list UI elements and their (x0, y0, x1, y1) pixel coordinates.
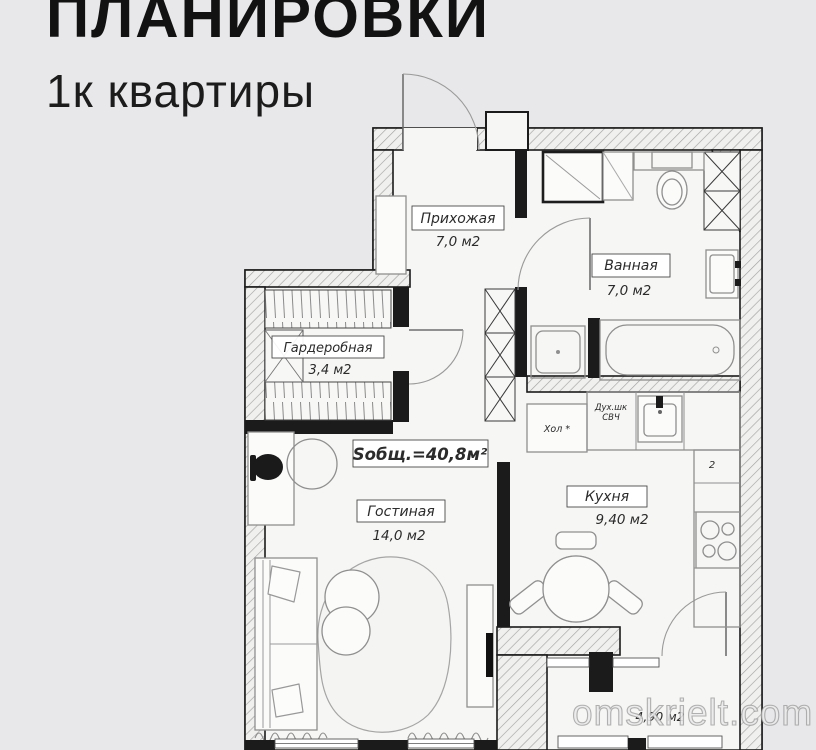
living-name: Гостиная (367, 504, 434, 520)
wardrobe-name: Гардеробная (284, 341, 373, 356)
desk (248, 432, 294, 525)
entry-column (486, 112, 528, 150)
vent-shaft-hall (485, 289, 515, 421)
tv-console (467, 585, 493, 707)
windows-bottom (245, 739, 497, 750)
cabinet-number: 2 (709, 460, 715, 471)
oven-label: Дух.шк (594, 403, 628, 413)
hallway-name: Прихожая (421, 211, 496, 227)
bath-cabinet (603, 152, 633, 200)
watermark: omskrielt.com (572, 692, 813, 734)
living-area: 14,0 м2 (372, 528, 425, 544)
floor-plan-svg: Прихожая 7,0 м2 Ванная 7,0 м2 Гардеробна… (0, 0, 816, 750)
bathroom-name: Ванная (604, 258, 658, 274)
hall-closet (376, 196, 406, 274)
total-area: Sобщ.=40,8м² (353, 445, 488, 464)
washing-machine (543, 152, 603, 202)
kitchen-name: Кухня (585, 489, 629, 505)
hallway-area: 7,0 м2 (436, 234, 481, 250)
vent-shaft-bath (704, 152, 740, 230)
bathroom-sink (706, 250, 741, 298)
microwave-label: СВЧ (602, 413, 620, 423)
wardrobe-area: 3,4 м2 (309, 363, 352, 378)
sofa (255, 558, 317, 730)
kitchen-area: 9,40 м2 (595, 512, 648, 528)
fridge-label: Хол * (543, 424, 570, 435)
kitchen-sink (638, 396, 682, 442)
bathroom-area: 7,0 м2 (607, 283, 652, 299)
entry-door (403, 74, 479, 150)
